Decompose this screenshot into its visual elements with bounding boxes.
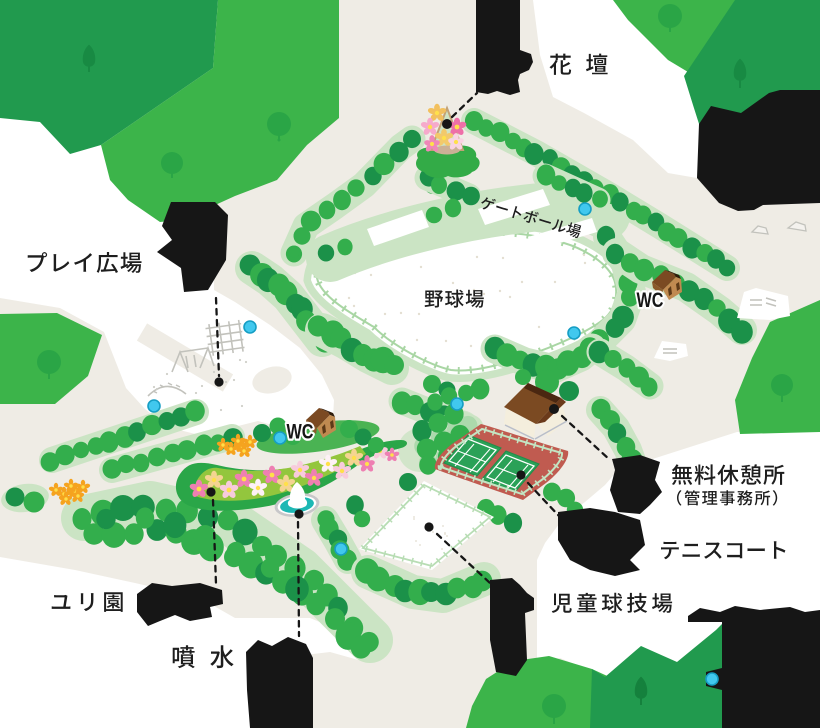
svg-text:WC: WC bbox=[287, 421, 314, 444]
svg-text:WC: WC bbox=[637, 289, 664, 312]
